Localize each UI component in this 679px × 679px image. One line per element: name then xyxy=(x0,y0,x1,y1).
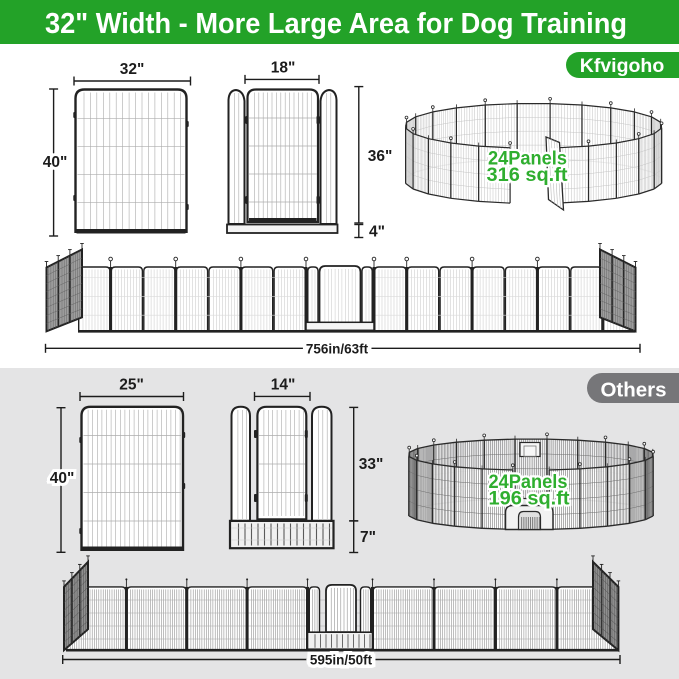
svg-text:756in/63ft: 756in/63ft xyxy=(306,342,369,357)
svg-text:40": 40" xyxy=(50,470,75,487)
svg-text:7": 7" xyxy=(360,529,376,546)
svg-text:36": 36" xyxy=(368,148,393,165)
svg-text:14": 14" xyxy=(271,377,296,394)
svg-text:40": 40" xyxy=(43,154,68,171)
svg-text:32" Width - More Large Area fo: 32" Width - More Large Area for Dog Trai… xyxy=(45,8,627,40)
svg-text:595in/50ft: 595in/50ft xyxy=(310,653,373,668)
svg-text:25": 25" xyxy=(119,377,144,394)
svg-text:Others: Others xyxy=(600,379,666,402)
svg-text:33": 33" xyxy=(359,456,384,473)
svg-text:316 sq.ft: 316 sq.ft xyxy=(487,164,569,186)
svg-text:4": 4" xyxy=(369,224,385,241)
svg-text:Kfvigoho: Kfvigoho xyxy=(580,55,665,77)
svg-text:196 sq.ft: 196 sq.ft xyxy=(489,488,571,510)
svg-text:32": 32" xyxy=(120,61,145,78)
svg-text:18": 18" xyxy=(271,60,296,77)
